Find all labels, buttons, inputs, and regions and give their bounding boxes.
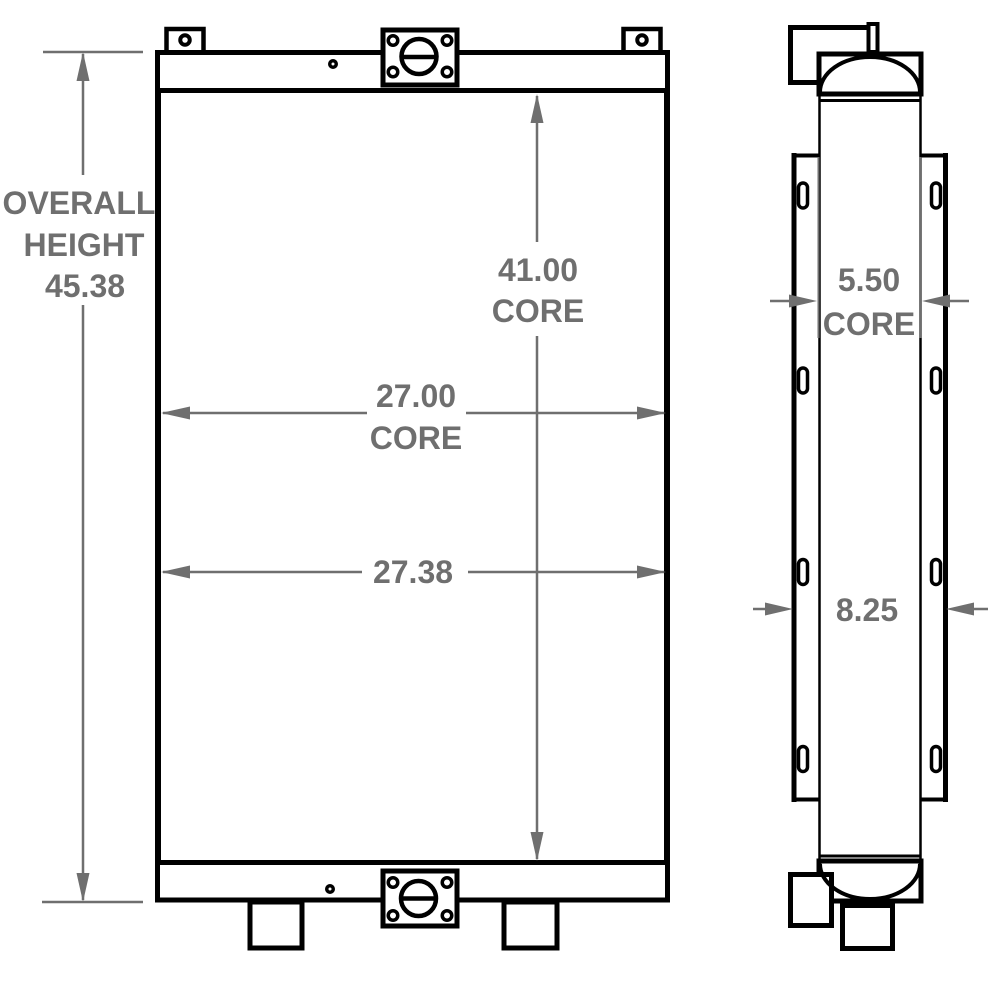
foot-left [250,902,302,948]
bottom-tank-pin-hole [327,886,334,893]
arrow-left-icon [161,407,190,420]
core-depth-label: CORE [823,306,915,342]
radiator-technical-drawing: OVERALL HEIGHT 45.38 41.00 CORE 27.00 CO… [0,0,992,983]
arrow-down-icon [531,832,544,861]
top-port-flange [383,30,457,85]
core-height-label: CORE [492,293,584,329]
mounting-slot [799,368,808,393]
foot-right [504,902,557,948]
arrow-left-icon [161,566,190,579]
overall-height-value: 45.38 [45,268,125,304]
arrow-right-icon [637,566,666,579]
arrow-down-icon [77,873,90,902]
technical-drawing-page: OVERALL HEIGHT 45.38 41.00 CORE 27.00 CO… [0,0,992,983]
tab-hole-left [180,35,190,45]
core-width-value: 27.00 [376,378,456,414]
front-view [158,29,668,948]
dim-overall-height: OVERALL HEIGHT 45.38 [3,52,156,902]
top-flange-bolt-hole [442,67,452,77]
side-bottom-tank [819,861,921,901]
mounting-slot [932,747,941,772]
top-tank-pin-hole [330,61,337,68]
arrow-right-icon [637,407,666,420]
overall-depth-value: 8.25 [836,592,898,628]
top-flange-bolt-hole [388,36,398,46]
mounting-slot [799,560,808,585]
arrow-left-icon [922,295,950,308]
arrow-up-icon [531,94,544,123]
mounting-slot [799,183,808,208]
side-top-tab-edge [869,24,878,52]
side-foot [843,906,893,949]
mounting-slot [932,560,941,585]
bottom-port-flange [383,871,457,926]
mounting-slot [799,747,808,772]
bottom-flange-bolt-hole [388,878,398,888]
overall-width-value: 27.38 [373,554,453,590]
dim-core-height: 41.00 CORE [492,94,584,861]
dim-overall-depth: 8.25 [753,592,988,628]
top-flange-bolt-hole [442,36,452,46]
mounting-slot [932,368,941,393]
overall-height-label: OVERALL [3,185,156,221]
bottom-flange-bolt-hole [442,911,452,921]
arrow-right-icon [789,295,817,308]
side-view [791,24,949,949]
dim-core-width: 27.00 CORE [161,378,666,456]
core-width-label: CORE [370,420,462,456]
dim-overall-width: 27.38 [161,554,666,590]
arrow-up-icon [77,52,90,81]
top-flange-bolt-hole [388,67,398,77]
bottom-flange-bolt-hole [388,911,398,921]
arrow-right-icon [765,603,793,616]
core-height-value: 41.00 [498,252,578,288]
arrow-left-icon [946,603,974,616]
overall-height-label: HEIGHT [24,227,145,263]
bottom-flange-bolt-hole [442,878,452,888]
tab-hole-right [637,35,647,45]
core-depth-value: 5.50 [838,262,900,298]
mounting-slot [932,183,941,208]
side-top-tank [819,54,921,94]
